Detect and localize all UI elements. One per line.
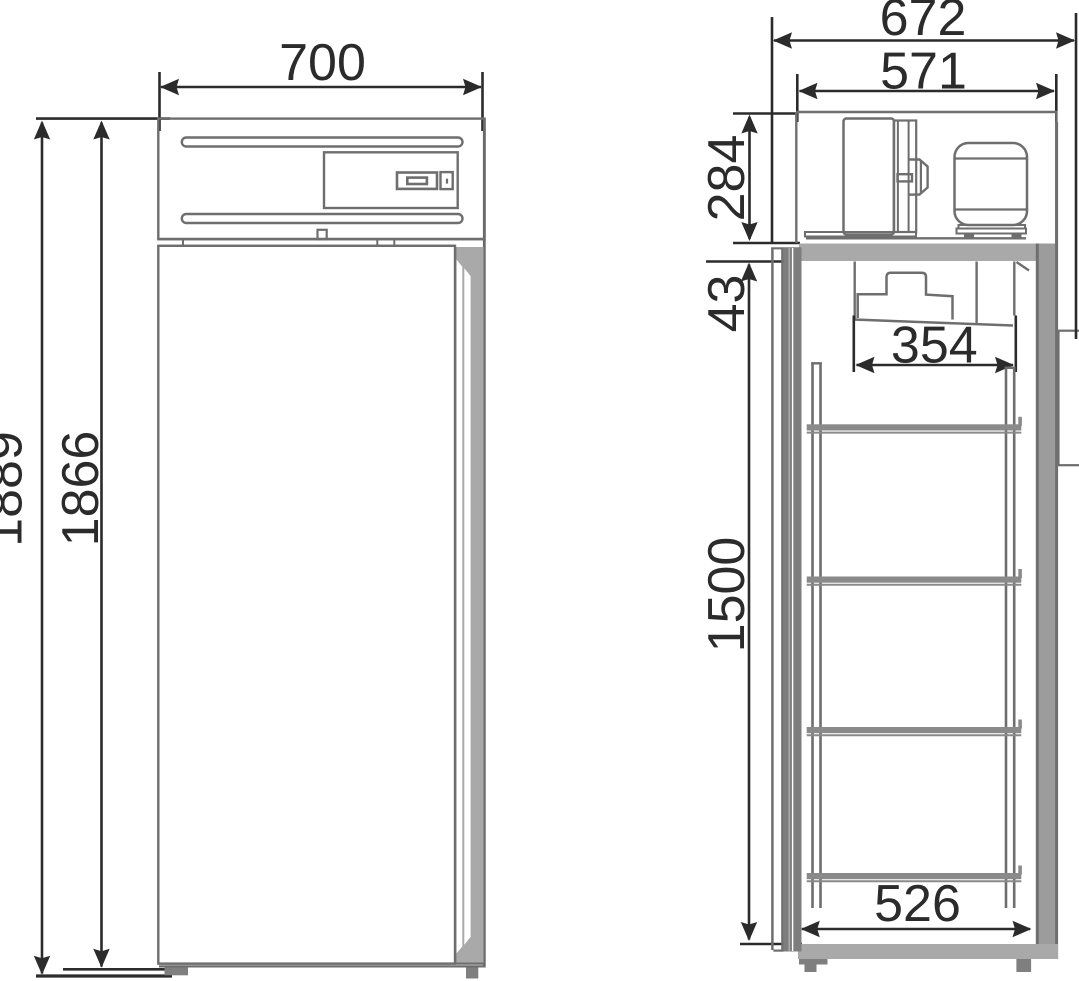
svg-text:700: 700	[279, 34, 366, 92]
svg-text:571: 571	[880, 42, 967, 100]
svg-text:672: 672	[880, 0, 967, 47]
svg-text:1500: 1500	[698, 537, 756, 653]
svg-text:1866: 1866	[52, 431, 110, 547]
svg-text:43: 43	[698, 275, 756, 333]
svg-text:526: 526	[874, 875, 961, 933]
svg-text:284: 284	[698, 135, 756, 222]
svg-text:1889: 1889	[0, 431, 33, 547]
svg-text:354: 354	[891, 317, 978, 375]
